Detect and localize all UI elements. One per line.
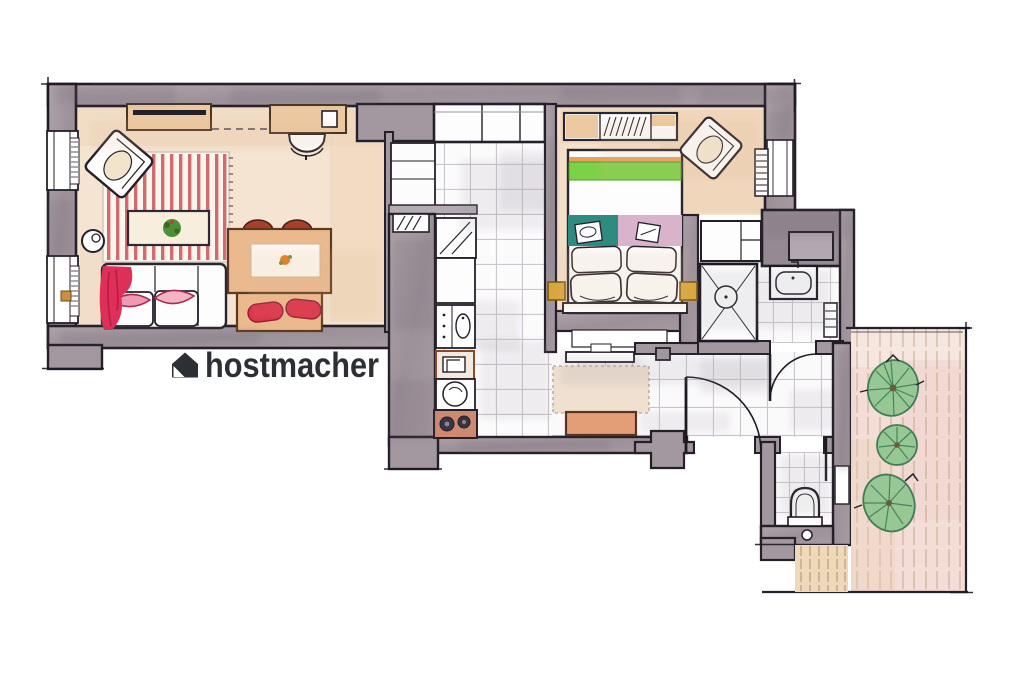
- svg-text:hostmacher: hostmacher: [205, 346, 379, 385]
